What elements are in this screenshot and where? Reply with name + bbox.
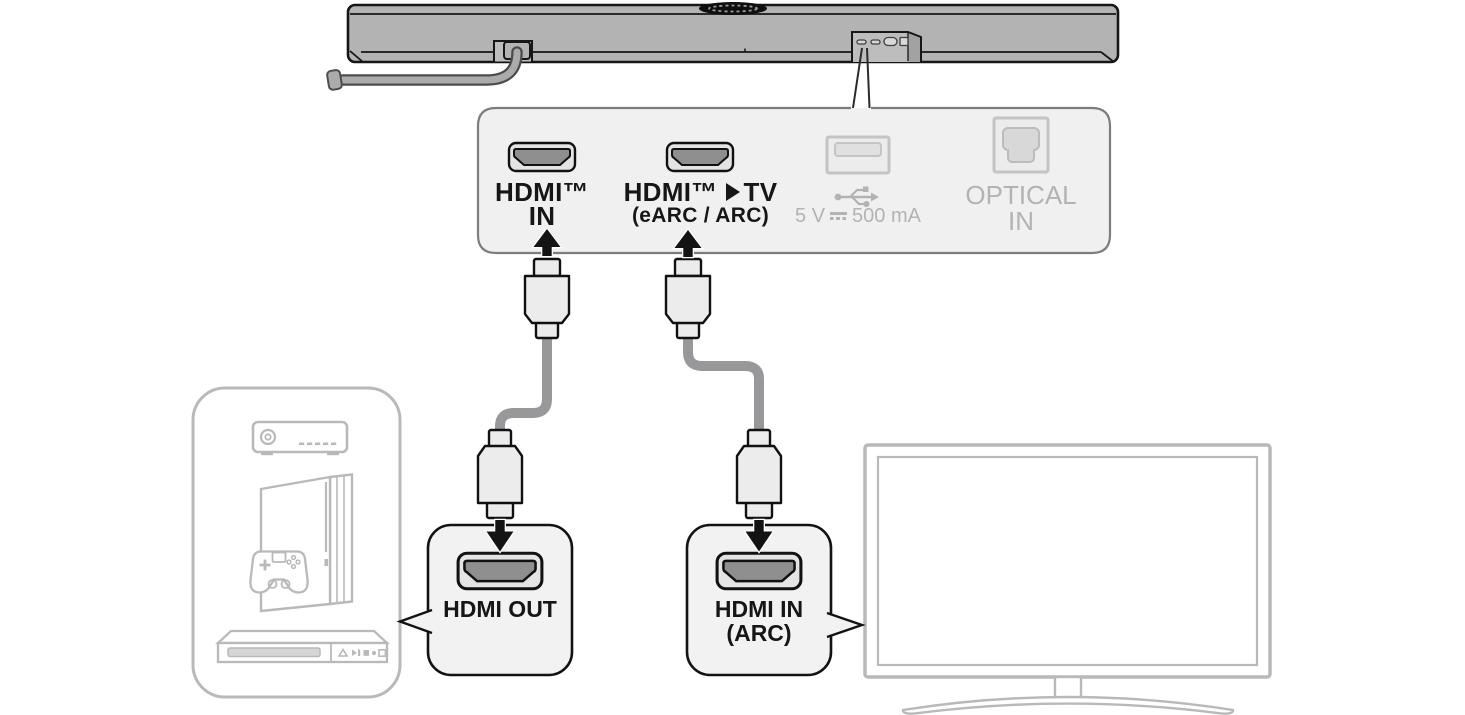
hdmi-out-label-text: HDMI OUT	[428, 597, 572, 621]
optical-label-line1: OPTICAL	[954, 182, 1088, 208]
hdmi-tv-port-label: HDMI™TV (eARC / ARC)	[613, 180, 788, 228]
hdmi-in-arc-label-line2: (ARC)	[687, 621, 831, 645]
hdmi-in-arc-label: HDMI IN (ARC)	[687, 597, 831, 645]
ports-recess	[852, 32, 921, 62]
hdmi-plug-up-right	[666, 259, 710, 338]
hdmi-cable-right	[688, 330, 759, 436]
game-console-icon	[261, 475, 352, 612]
hdmi-in-label-line2: IN	[477, 204, 607, 228]
hdmi-out-port-icon	[458, 553, 542, 589]
optical-port-icon	[994, 118, 1048, 172]
hdmi-in-port-label: HDMI™ IN	[477, 180, 607, 228]
soundbar-foot	[699, 2, 767, 15]
set-top-box-icon	[253, 422, 347, 455]
dvd-player-icon	[218, 631, 387, 662]
optical-port-label: OPTICAL IN	[954, 182, 1088, 234]
hdmi-cable-left	[500, 330, 547, 436]
hdmi-tv-port-icon	[667, 143, 733, 171]
callout-pointer-right	[827, 613, 862, 637]
hdmi-tv-label-line2: (eARC / ARC)	[613, 204, 788, 228]
triangle-right-icon	[726, 183, 740, 201]
soundbar-connection-diagram: HDMI™ IN HDMI™TV (eARC / ARC) 5 V 500 mA…	[0, 0, 1465, 715]
hdmi-tv-label-prefix: HDMI™	[624, 177, 718, 207]
hdmi-plug-down-left	[478, 430, 522, 518]
soundbar	[348, 2, 1118, 62]
usb-power-label: 5 V 500 mA	[788, 204, 928, 228]
usb-port-icon	[827, 137, 889, 173]
usb-power-suffix: 500 mA	[852, 204, 921, 228]
hdmi-out-label: HDMI OUT	[428, 597, 572, 621]
tv-icon	[865, 445, 1270, 714]
hdmi-plug-up-left	[525, 259, 569, 338]
hdmi-in-arc-label-line1: HDMI IN	[687, 597, 831, 621]
source-devices-box	[193, 388, 400, 697]
hdmi-in-port-icon	[509, 143, 575, 171]
hdmi-plug-down-right	[737, 430, 781, 518]
optical-label-line2: IN	[954, 208, 1088, 234]
hdmi-in-arc-port-icon	[717, 553, 801, 589]
hdmi-tv-label-suffix: TV	[744, 177, 778, 207]
usb-power-prefix: 5 V	[795, 204, 825, 228]
dc-symbol-icon	[830, 212, 847, 219]
